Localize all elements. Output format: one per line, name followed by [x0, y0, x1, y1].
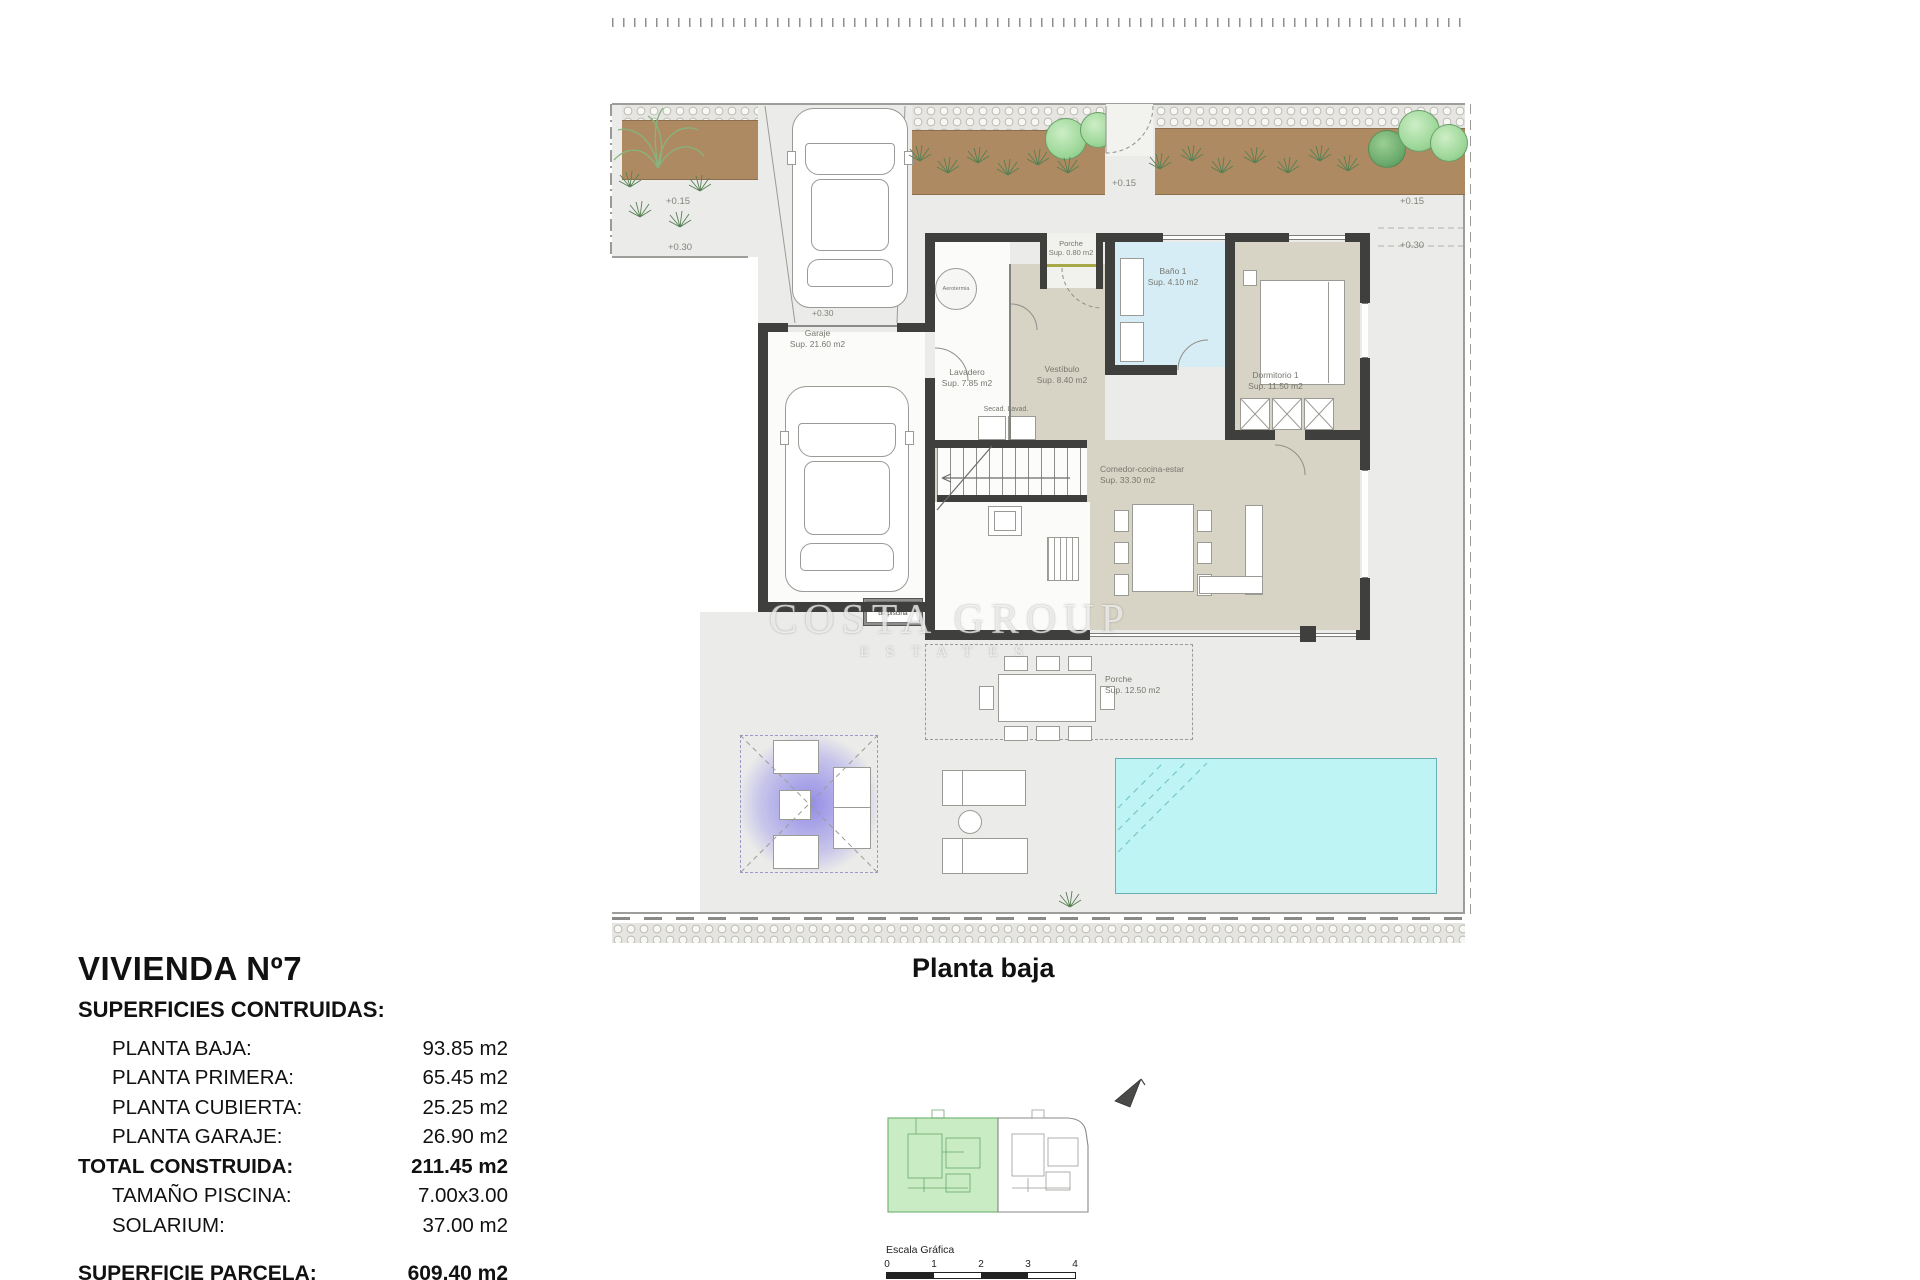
north-arrow-icon [1110, 1076, 1146, 1112]
label-vestibulo: VestíbuloSup. 8.40 m2 [1022, 364, 1102, 385]
palm-plant [614, 108, 704, 168]
stair-arrow [942, 474, 1070, 482]
scale-segment [981, 1273, 1028, 1278]
scale-segment [887, 1273, 934, 1278]
label-dormitorio1: Dormitorio 1Sup. 11.50 m2 [1228, 370, 1323, 391]
summary-row-label: SOLARIUM: [78, 1214, 225, 1238]
summary-row: PLANTA BAJA:93.85 m2 [78, 1034, 508, 1064]
car-garage [785, 386, 909, 592]
key-plan-unit-left [888, 1118, 998, 1212]
summary-row-label: TAMAÑO PISCINA: [78, 1184, 292, 1208]
summary-row-label: PLANTA BAJA: [78, 1037, 252, 1061]
summary-row-label: PLANTA PRIMERA: [78, 1066, 294, 1090]
summary-title: VIVIENDA Nº7 [78, 950, 508, 988]
grass-tuft [628, 200, 652, 218]
level-marker: +0.15 [1112, 178, 1136, 189]
pergola-cross [740, 735, 878, 873]
key-plan-unit-right [998, 1118, 1088, 1212]
scale-tick: 2 [978, 1259, 984, 1270]
gate-swing-arc [1106, 106, 1153, 153]
parcela-value: 609.40 m2 [408, 1262, 508, 1280]
car-mirror [780, 431, 789, 445]
wardrobe-cross [1304, 398, 1334, 430]
key-plan [886, 1108, 1110, 1224]
grass-tuft [966, 146, 990, 164]
wardrobe-cross [1240, 398, 1270, 430]
grass-tuft [1026, 148, 1050, 166]
car-mirror [905, 431, 914, 445]
summary-subtitle: SUPERFICIES CONTRUIDAS: [78, 997, 508, 1023]
level-marker: +0.15 [1400, 196, 1424, 207]
hall-door-arc [1011, 304, 1037, 330]
label-bano1: Baño 1Sup. 4.10 m2 [1133, 266, 1213, 287]
grass-tuft [996, 158, 1020, 176]
car-windshield [805, 143, 895, 175]
car-rear-window [800, 543, 894, 571]
summary-row-label: PLANTA GARAJE: [78, 1125, 283, 1149]
summary-row-value: 93.85 m2 [423, 1037, 508, 1061]
scale-tick: 3 [1025, 1259, 1031, 1270]
summary-row: PLANTA GARAJE:26.90 m2 [78, 1123, 508, 1153]
grass-tuft [1058, 890, 1082, 908]
grass-tuft [1056, 156, 1080, 174]
site-plan: Depuradora de piscina Aerotermia [600, 18, 1490, 945]
parcela-label: SUPERFICIE PARCELA: [78, 1262, 317, 1280]
summary-row-value: 25.25 m2 [423, 1096, 508, 1120]
car-roof [804, 461, 890, 535]
car-mirror [787, 151, 796, 165]
level-marker: +0.30 [668, 242, 692, 253]
summary-row-label: TOTAL CONSTRUIDA: [78, 1155, 293, 1179]
summary-row: TAMAÑO PISCINA:7.00x3.00 [78, 1182, 508, 1212]
label-secadero: Secad. Lavad. [970, 406, 1042, 415]
scale-tick: 0 [884, 1259, 890, 1270]
bedroom-door-arc [1275, 445, 1305, 475]
level-marker: +0.30 [1400, 240, 1424, 251]
label-garaje: GarajeSup. 21.60 m2 [780, 328, 855, 349]
parcela-row: SUPERFICIE PARCELA: 609.40 m2 [78, 1262, 508, 1280]
grass-tuft [1308, 144, 1332, 162]
wardrobe-cross [1272, 398, 1302, 430]
scale-tick: 4 [1072, 1259, 1078, 1270]
scale-bar: 0 1 2 3 4 [886, 1272, 1076, 1279]
grass-tuft [1276, 156, 1300, 174]
summary-row-value: 211.45 m2 [411, 1155, 508, 1179]
level-marker: +0.30 [812, 308, 834, 318]
label-lavadero: LavaderoSup. 7.85 m2 [928, 367, 1006, 388]
grass-tuft [1243, 146, 1267, 164]
summary-row-value: 65.45 m2 [423, 1066, 508, 1090]
car-windshield [798, 423, 896, 457]
grass-tuft [1336, 154, 1360, 172]
bath-door-arc [1178, 340, 1208, 370]
summary-row: TOTAL CONSTRUIDA:211.45 m2 [78, 1152, 508, 1182]
summary-row-value: 37.00 m2 [423, 1214, 508, 1238]
scale-segment [1028, 1273, 1075, 1278]
car-roof [811, 179, 889, 251]
grass-tuft [1180, 144, 1204, 162]
grass-tuft [618, 170, 642, 188]
summary-row-value: 7.00x3.00 [418, 1184, 508, 1208]
car-rear-window [807, 259, 893, 287]
level-marker: +0.15 [666, 196, 690, 207]
summary-row: SOLARIUM:37.00 m2 [78, 1211, 508, 1241]
car-driveway [792, 108, 908, 308]
summary-row: PLANTA CUBIERTA:25.25 m2 [78, 1093, 508, 1123]
label-comedor: Comedor-cocina-estarSup. 33.30 m2 [1100, 464, 1230, 485]
label-porche-trasero: PorcheSup. 12.50 m2 [1105, 674, 1195, 695]
driveway-edge-left [765, 106, 795, 323]
grass-tuft [688, 174, 712, 192]
label-porche-entrada: PorcheSup. 0.80 m2 [1037, 239, 1105, 258]
surface-summary: VIVIENDA Nº7 SUPERFICIES CONTRUIDAS: PLA… [78, 950, 508, 1241]
scale-segment [934, 1273, 981, 1278]
summary-rows: PLANTA BAJA:93.85 m2PLANTA PRIMERA:65.45… [78, 1034, 508, 1241]
scale-tick: 1 [931, 1259, 937, 1270]
scale-graphic: Escala Gráfica 0 1 2 3 4 [886, 1244, 1086, 1279]
grass-tuft [1210, 156, 1234, 174]
grass-tuft [908, 144, 932, 162]
summary-row-value: 26.90 m2 [423, 1125, 508, 1149]
floorplan-sheet: { "watermark": { "line1": "COSTA GROUP",… [0, 0, 1920, 1280]
summary-row-label: PLANTA CUBIERTA: [78, 1096, 302, 1120]
scale-label: Escala Gráfica [886, 1244, 954, 1256]
plan-caption: Planta baja [912, 953, 1055, 984]
entry-door-arc [1062, 268, 1102, 308]
grass-tuft [936, 156, 960, 174]
pool-corner-hatch [1118, 763, 1207, 852]
summary-row: PLANTA PRIMERA:65.45 m2 [78, 1064, 508, 1094]
grass-tuft [668, 210, 692, 228]
grass-tuft [1148, 152, 1172, 170]
